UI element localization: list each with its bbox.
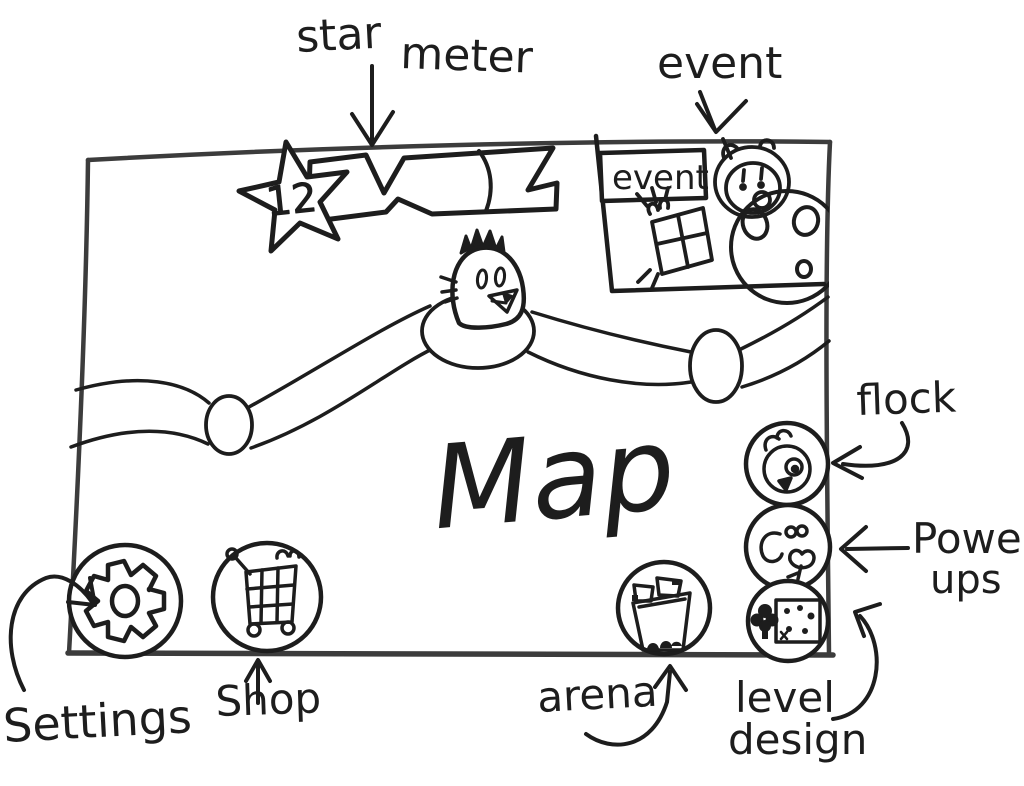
- flock-button[interactable]: [746, 423, 828, 505]
- powerups-label-line2: ups: [930, 557, 1002, 603]
- star-meter-arrow: [352, 66, 393, 145]
- bird-marker-icon: [441, 230, 524, 328]
- settings-label: Settings: [2, 689, 193, 753]
- powerups-button[interactable]: [746, 505, 830, 589]
- leveldesign-button[interactable]: [748, 581, 828, 661]
- powerups-arrow: [841, 527, 908, 571]
- powerups-label-line1: Power: [912, 514, 1024, 563]
- arena-button[interactable]: [618, 562, 710, 654]
- event-tab-label: event: [612, 158, 709, 198]
- shop-button[interactable]: [213, 543, 321, 651]
- star-meter-label-meter: meter: [400, 28, 535, 84]
- event-annotation-label: event: [657, 38, 782, 89]
- map-title: Map: [427, 402, 680, 557]
- arena-label: arena: [536, 667, 659, 722]
- level-node[interactable]: [690, 330, 742, 402]
- flock-arrow: [833, 423, 908, 478]
- flock-label: flock: [856, 373, 958, 425]
- leveldesign-arrow: [833, 604, 880, 719]
- event-arrow: [697, 92, 746, 132]
- settings-button[interactable]: [69, 545, 181, 657]
- meter-bar: [308, 148, 557, 222]
- star-meter[interactable]: 12: [239, 142, 557, 251]
- star-meter-label-star: star: [295, 8, 384, 63]
- gift-icon: [637, 188, 712, 288]
- star-count: 12: [264, 175, 319, 226]
- leveldesign-label-line2: design: [728, 715, 867, 764]
- level-node[interactable]: [206, 396, 252, 454]
- game-map-wireframe: 12: [0, 0, 1024, 786]
